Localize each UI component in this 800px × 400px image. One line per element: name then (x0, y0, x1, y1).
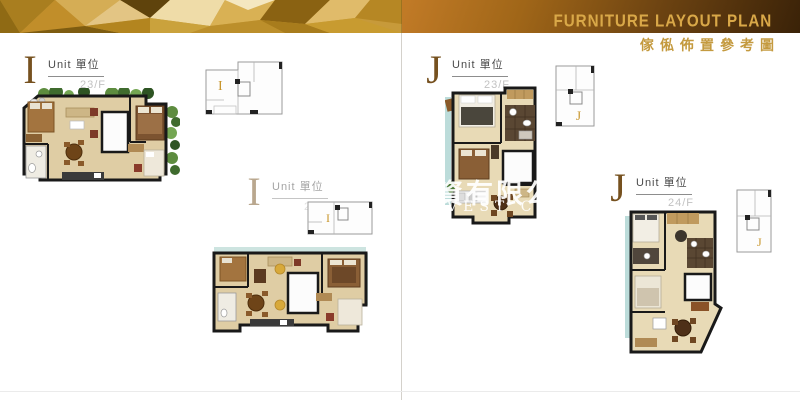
gold-lowpoly-icon (0, 0, 402, 33)
unit-letter: I (22, 54, 38, 85)
label-rule (636, 194, 692, 195)
key-plan-unit-letter: I (218, 79, 223, 94)
unit-text: Unit 單位 (48, 59, 100, 71)
key-plan-i-24f: I (304, 192, 376, 238)
key-plan-j-23f: J (552, 62, 598, 130)
unit-letter: I (246, 176, 262, 207)
key-plan-j-24f: J (733, 186, 775, 256)
unit-letter: J (610, 172, 626, 203)
key-plan-i-23f: I (202, 54, 286, 122)
watermark-text-en: VEST CO (447, 199, 555, 215)
unit-text: Unit 單位 (636, 177, 688, 189)
unit-label-i-23f: I Unit 單位 23/F (22, 54, 106, 91)
floor-plan-i-23f (14, 88, 180, 182)
label-rule (48, 76, 104, 77)
banner-polygon-art (0, 0, 402, 33)
floor-plan-i-24f (210, 243, 372, 333)
key-plan-unit-letter: J (757, 235, 762, 249)
page-fold-divider (401, 0, 402, 400)
floor-plan-j-24f (625, 208, 725, 355)
page-bottom-edge (0, 391, 800, 392)
key-plan-unit-letter: J (576, 108, 581, 123)
unit-label-j-24f: J Unit 單位 24/F (610, 172, 694, 209)
page-subtitle: 傢俬佈置參考圖 (640, 35, 780, 55)
unit-letter: J (426, 54, 442, 85)
page-title: FURNITURE LAYOUT PLAN (553, 12, 772, 32)
banner-gradient: FURNITURE LAYOUT PLAN (402, 0, 800, 33)
key-plan-unit-letter: I (326, 211, 330, 225)
unit-label-text: Unit 單位 24/F (636, 172, 694, 209)
label-rule (452, 76, 508, 77)
unit-text: Unit 單位 (452, 59, 504, 71)
unit-label-text: Unit 單位 23/F (48, 54, 106, 91)
